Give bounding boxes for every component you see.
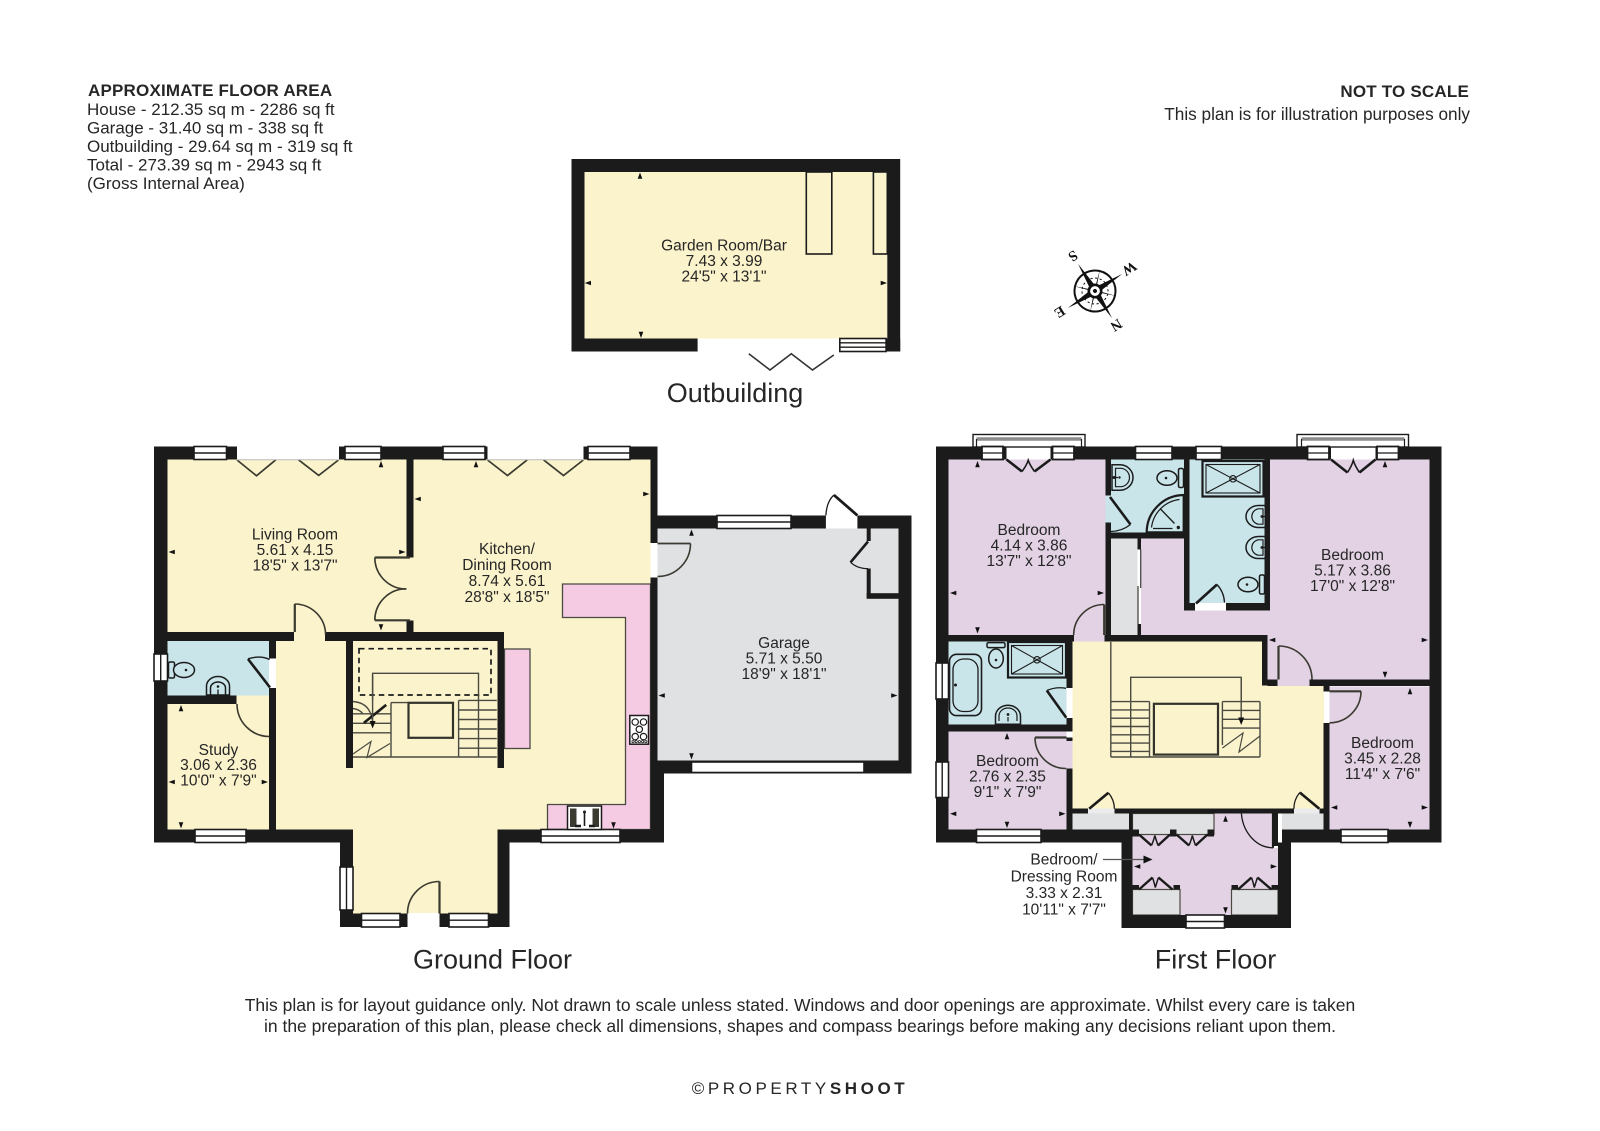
svg-text:Bedroom: Bedroom [998,522,1061,539]
svg-text:First Floor: First Floor [1155,945,1277,975]
svg-text:Bedroom: Bedroom [976,753,1039,770]
svg-text:Bedroom/: Bedroom/ [1030,852,1098,869]
svg-text:(Gross Internal Area): (Gross Internal Area) [87,174,245,193]
svg-text:3.45 x 2.28: 3.45 x 2.28 [1344,751,1421,768]
svg-text:Garage: Garage [758,635,810,652]
svg-text:House - 212.35 sq m - 2286 sq: House - 212.35 sq m - 2286 sq ft [87,100,335,119]
svg-text:Bedroom: Bedroom [1351,735,1414,752]
svg-text:in the preparation of this pla: in the preparation of this plan, please … [264,1016,1336,1036]
svg-text:This plan is for layout guidan: This plan is for layout guidance only. N… [245,995,1356,1015]
svg-text:Dining Room: Dining Room [462,557,552,574]
svg-text:18'9" x 18'1": 18'9" x 18'1" [741,666,826,683]
svg-text:9'1" x 7'9": 9'1" x 7'9" [974,784,1042,801]
svg-text:Living Room: Living Room [252,527,338,544]
svg-text:Ground Floor: Ground Floor [413,945,572,975]
svg-text:13'7" x 12'8": 13'7" x 12'8" [986,553,1071,570]
svg-text:11'4" x 7'6": 11'4" x 7'6" [1345,766,1420,783]
svg-text:10'0" x 7'9": 10'0" x 7'9" [180,773,256,790]
svg-text:18'5" x 13'7": 18'5" x 13'7" [252,558,337,575]
svg-text:NOT TO SCALE: NOT TO SCALE [1340,82,1469,101]
svg-text:2.76 x 2.35: 2.76 x 2.35 [969,769,1046,786]
svg-text:3.06 x 2.36: 3.06 x 2.36 [180,757,257,774]
svg-text:This plan is for illustration: This plan is for illustration purposes o… [1164,104,1470,124]
svg-text:Garden Room/Bar: Garden Room/Bar [661,238,787,255]
svg-text:S: S [1065,246,1080,264]
svg-text:Outbuilding: Outbuilding [667,378,804,408]
svg-text:24'5" x 13'1": 24'5" x 13'1" [681,269,766,286]
svg-text:5.61 x 4.15: 5.61 x 4.15 [257,542,334,559]
svg-text:7.43 x 3.99: 7.43 x 3.99 [686,253,763,270]
svg-text:Outbuilding - 29.64 sq m - 319: Outbuilding - 29.64 sq m - 319 sq ft [87,137,353,156]
svg-text:10'11" x 7'7": 10'11" x 7'7" [1022,902,1106,919]
svg-text:17'0" x 12'8": 17'0" x 12'8" [1310,578,1395,595]
svg-text:©PROPERTYSHOOT: ©PROPERTYSHOOT [692,1079,909,1098]
svg-text:W: W [1118,257,1139,279]
svg-text:Total - 273.39 sq m - 2943 sq: Total - 273.39 sq m - 2943 sq ft [87,156,322,175]
svg-text:Dressing Room: Dressing Room [1011,869,1118,886]
svg-text:5.71 x 5.50: 5.71 x 5.50 [746,651,823,668]
svg-text:Bedroom: Bedroom [1321,547,1384,564]
svg-text:Kitchen/: Kitchen/ [479,541,536,558]
svg-text:5.17 x 3.86: 5.17 x 3.86 [1314,563,1391,580]
svg-text:8.74 x 5.61: 8.74 x 5.61 [469,573,546,590]
svg-text:APPROXIMATE FLOOR AREA: APPROXIMATE FLOOR AREA [88,81,332,100]
svg-text:3.33 x 2.31: 3.33 x 2.31 [1026,885,1103,902]
svg-text:N: N [1107,315,1125,334]
svg-text:4.14 x 3.86: 4.14 x 3.86 [991,538,1068,555]
svg-text:E: E [1051,302,1068,321]
svg-text:28'8" x 18'5": 28'8" x 18'5" [464,589,549,606]
svg-text:Garage - 31.40 sq m - 338 sq f: Garage - 31.40 sq m - 338 sq ft [87,119,324,138]
